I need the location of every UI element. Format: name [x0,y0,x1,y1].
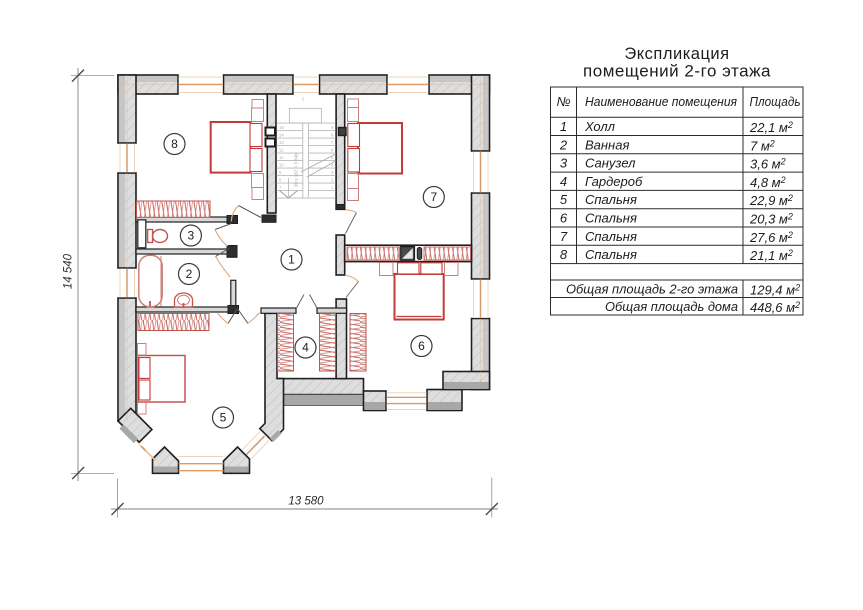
svg-text:3: 3 [331,170,334,175]
svg-text:3: 3 [188,229,195,243]
svg-text:Спальня: Спальня [585,192,637,207]
svg-text:Спальня: Спальня [585,229,637,244]
svg-text:7 м2: 7 м2 [750,138,775,153]
svg-text:8: 8 [279,178,282,183]
svg-text:6: 6 [331,148,334,153]
svg-text:Наименование помещения: Наименование помещения [585,94,737,109]
svg-text:1: 1 [288,253,295,267]
svg-text:4: 4 [331,163,334,168]
svg-text:8: 8 [171,137,178,151]
svg-text:Общая площадь 2-го этажа: Общая площадь 2-го этажа [566,282,738,297]
svg-text:2: 2 [186,267,193,281]
svg-text:2: 2 [559,137,568,152]
svg-text:7: 7 [430,190,437,204]
svg-text:22,9 м2: 22,9 м2 [749,193,793,208]
svg-text:Площадь: Площадь [750,94,801,109]
svg-text:21,1 м2: 21,1 м2 [749,248,793,263]
svg-text:4: 4 [560,174,567,189]
svg-text:1: 1 [331,185,334,190]
svg-text:15: 15 [279,125,284,130]
svg-text:22,1 м2: 22,1 м2 [749,120,793,135]
svg-text:3: 3 [560,156,568,171]
svg-text:20,3 м2: 20,3 м2 [749,212,793,227]
svg-text:27,6 м2: 27,6 м2 [749,230,793,245]
svg-text:13 580: 13 580 [288,496,324,508]
svg-text:8: 8 [331,133,334,138]
svg-text:Спальня: Спальня [585,211,637,226]
svg-text:12: 12 [279,148,284,153]
svg-text:Гардероб: Гардероб [585,174,643,189]
svg-text:Экспликация: Экспликация [624,45,729,63]
svg-text:448,6 м2: 448,6 м2 [750,300,800,315]
svg-text:14: 14 [279,133,284,138]
svg-text:4,8 м2: 4,8 м2 [750,175,786,190]
svg-text:№: № [556,94,570,109]
svg-text:помещений 2-го этажа: помещений 2-го этажа [583,63,771,81]
svg-text:11: 11 [279,155,284,160]
svg-text:7: 7 [331,140,334,145]
svg-text:3,6 м2: 3,6 м2 [750,157,786,172]
svg-text:Спальня: Спальня [585,247,637,262]
svg-text:Общая площадь дома: Общая площадь дома [605,299,738,314]
svg-text:4: 4 [302,341,309,355]
svg-text:Холл: Холл [584,119,616,134]
svg-text:20 x 167 = 3 340: 20 x 167 = 3 340 [294,153,299,187]
svg-text:Ванная: Ванная [585,137,629,152]
svg-text:14 540: 14 540 [63,253,75,289]
svg-text:9: 9 [331,125,334,130]
svg-text:129,4 м2: 129,4 м2 [750,283,800,298]
svg-text:1: 1 [560,119,567,134]
svg-text:7: 7 [560,229,568,244]
svg-text:2: 2 [331,178,334,183]
svg-text:6: 6 [560,211,568,226]
svg-text:5: 5 [560,192,568,207]
svg-text:10: 10 [279,163,284,168]
svg-text:5: 5 [220,411,227,425]
svg-text:5: 5 [331,155,334,160]
svg-text:13: 13 [279,140,284,145]
svg-text:9: 9 [279,170,282,175]
svg-text:7: 7 [279,185,282,190]
svg-text:6: 6 [418,339,425,353]
svg-text:Санузел: Санузел [585,156,636,171]
svg-text:2: 2 [302,97,305,102]
svg-text:8: 8 [560,247,568,262]
